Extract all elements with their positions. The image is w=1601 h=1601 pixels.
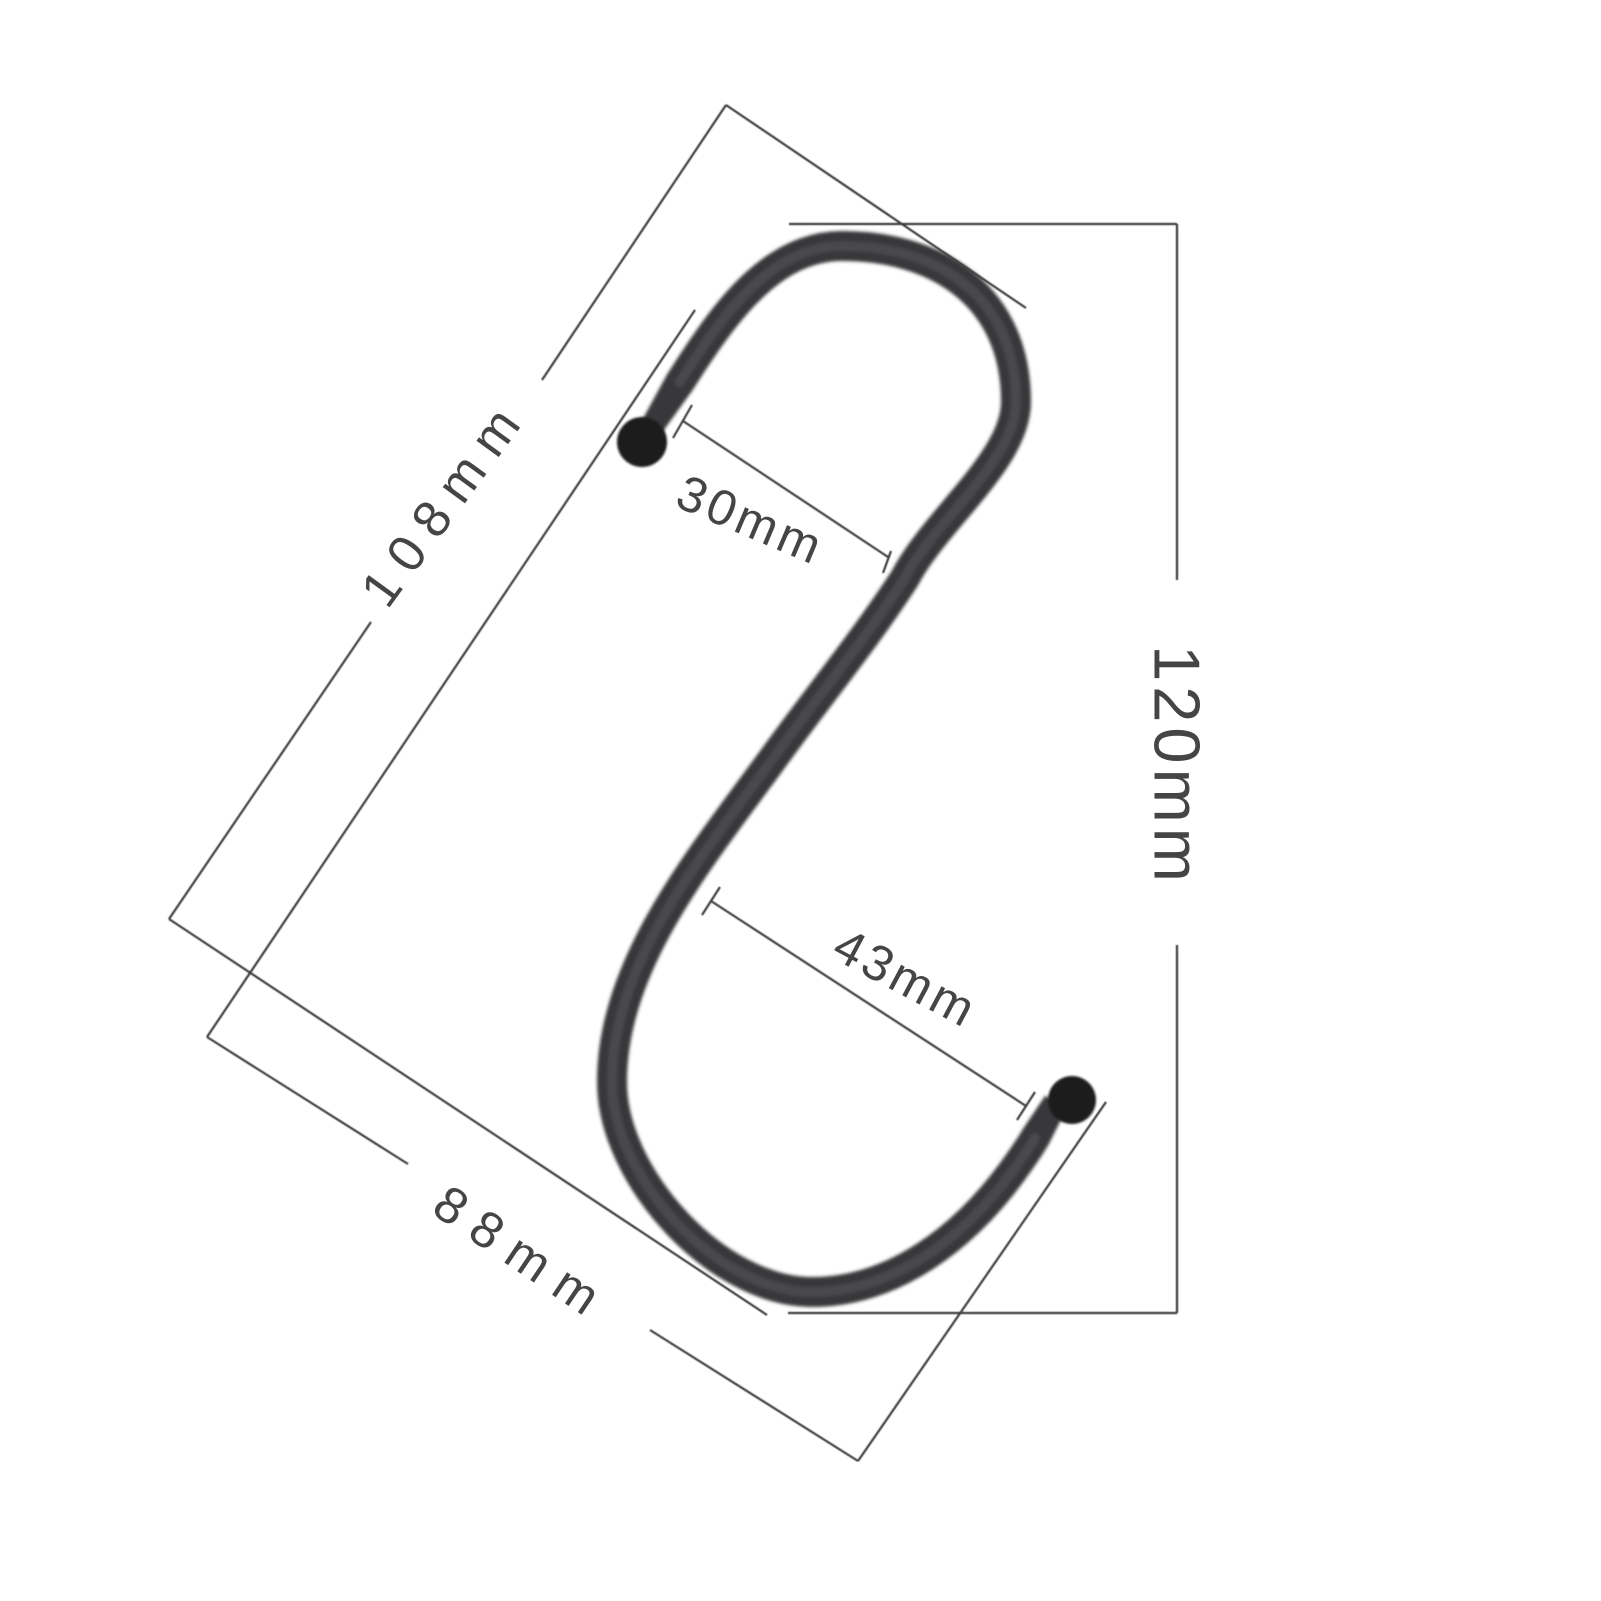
svg-text:120mm: 120mm xyxy=(1141,645,1214,887)
